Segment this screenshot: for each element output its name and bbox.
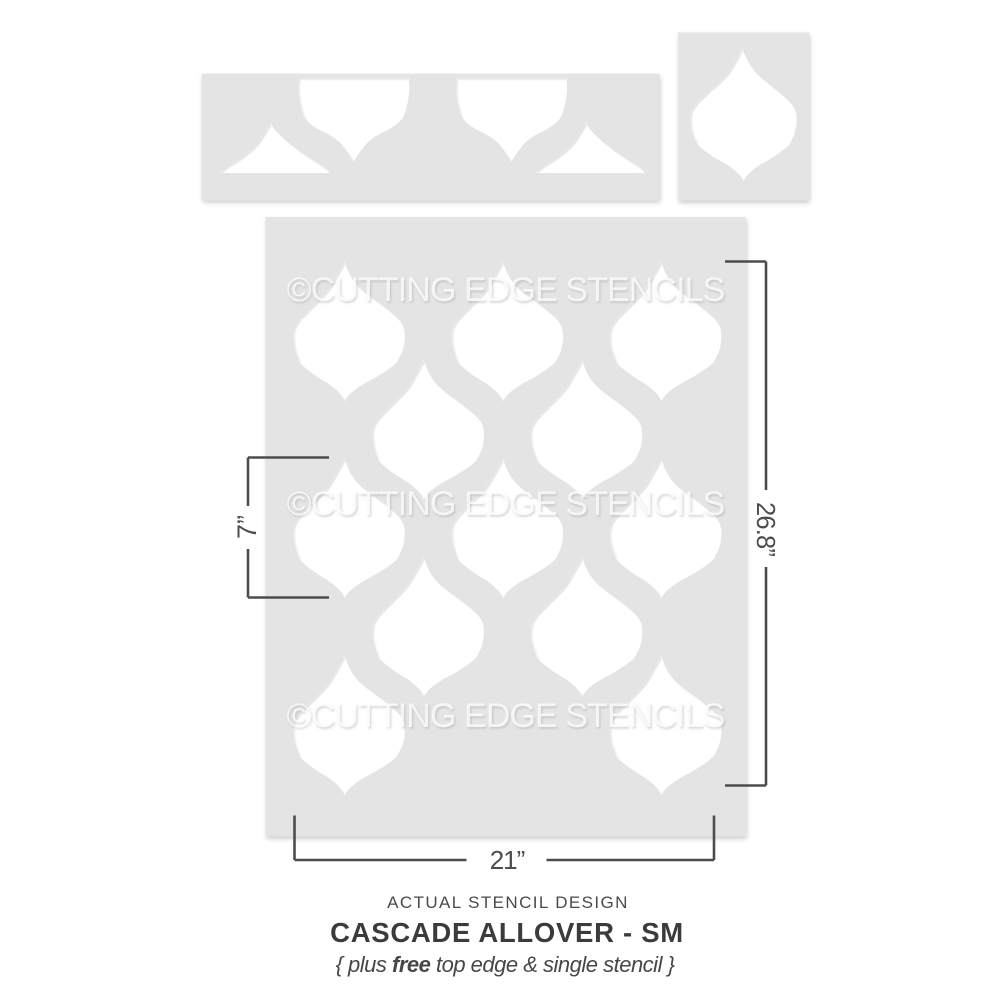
svg-text:©CUTTING EDGE STENCILS: ©CUTTING EDGE STENCILS <box>287 697 725 735</box>
svg-text:ACTUAL STENCIL DESIGN: ACTUAL STENCIL DESIGN <box>387 893 629 912</box>
svg-text:7”: 7” <box>232 515 262 539</box>
svg-text:21”: 21” <box>490 845 525 875</box>
svg-text:©CUTTING EDGE STENCILS: ©CUTTING EDGE STENCILS <box>287 271 725 309</box>
svg-text:©CUTTING EDGE STENCILS: ©CUTTING EDGE STENCILS <box>287 485 725 523</box>
svg-text:CASCADE ALLOVER - SM: CASCADE ALLOVER - SM <box>330 917 684 948</box>
svg-text:{ plus free top edge & single: { plus free top edge & single stencil } <box>336 952 676 977</box>
svg-text:26.8”: 26.8” <box>751 502 779 556</box>
